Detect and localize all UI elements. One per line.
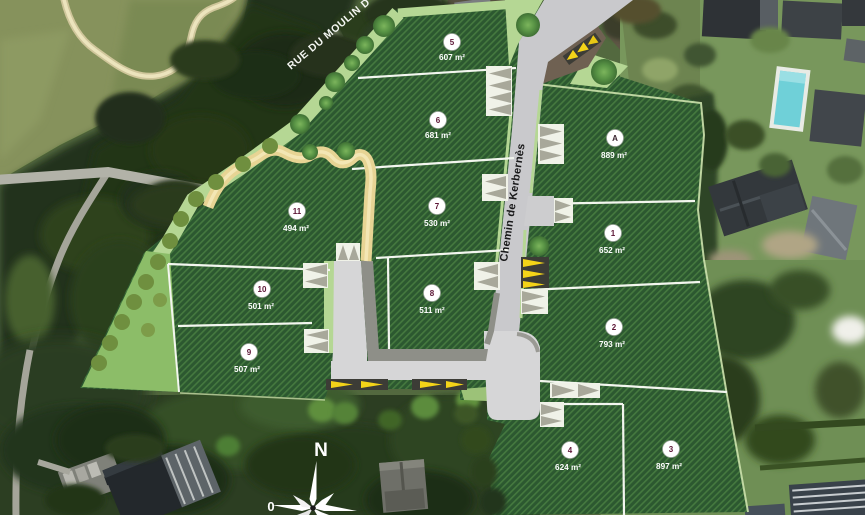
svg-text:8: 8 xyxy=(430,289,435,298)
svg-text:6: 6 xyxy=(436,116,441,125)
svg-text:9: 9 xyxy=(247,348,252,357)
svg-text:652 m²: 652 m² xyxy=(599,246,625,255)
svg-text:N: N xyxy=(314,440,328,461)
svg-text:494 m²: 494 m² xyxy=(283,224,309,233)
svg-text:793 m²: 793 m² xyxy=(599,340,625,349)
svg-text:0: 0 xyxy=(267,499,274,514)
svg-text:5: 5 xyxy=(450,38,455,47)
svg-text:10: 10 xyxy=(258,285,267,294)
svg-text:607 m²: 607 m² xyxy=(439,53,465,62)
svg-text:501 m²: 501 m² xyxy=(248,302,274,311)
svg-text:624 m²: 624 m² xyxy=(555,463,581,472)
svg-text:7: 7 xyxy=(435,202,440,211)
svg-text:11: 11 xyxy=(293,207,302,216)
svg-text:511 m²: 511 m² xyxy=(419,306,445,315)
svg-text:2: 2 xyxy=(612,323,617,332)
svg-text:1: 1 xyxy=(611,229,616,238)
svg-text:897 m²: 897 m² xyxy=(656,462,682,471)
svg-text:507 m²: 507 m² xyxy=(234,365,260,374)
svg-text:4: 4 xyxy=(568,446,573,455)
svg-text:A: A xyxy=(612,134,618,143)
svg-text:889 m²: 889 m² xyxy=(601,151,627,160)
svg-text:681 m²: 681 m² xyxy=(425,131,451,140)
svg-text:530 m²: 530 m² xyxy=(424,219,450,228)
svg-text:3: 3 xyxy=(669,445,674,454)
